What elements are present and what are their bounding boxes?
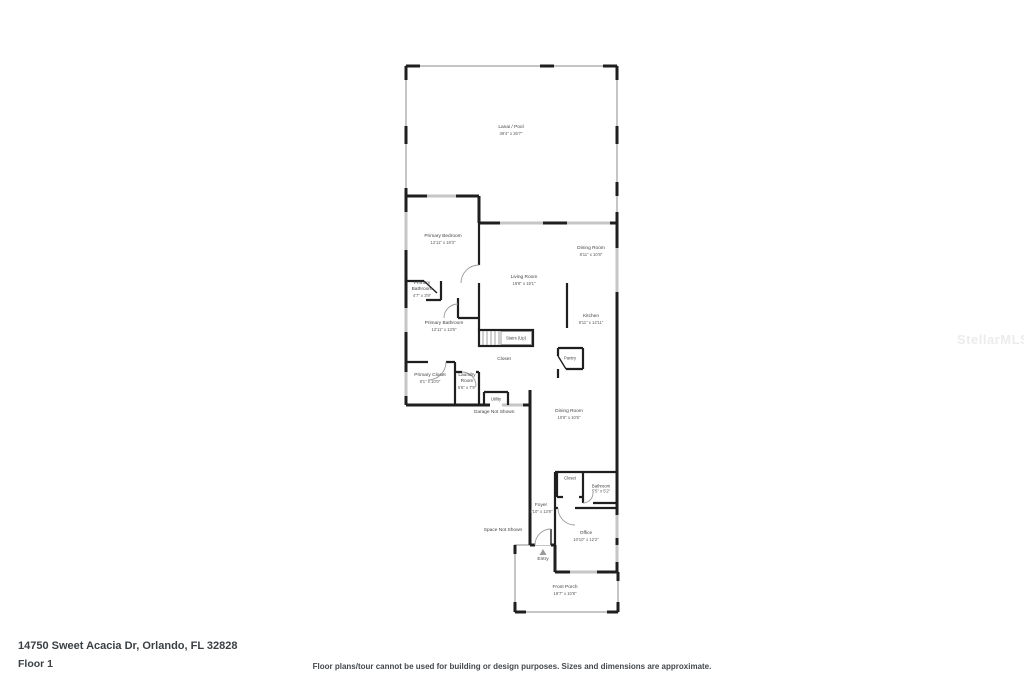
stairs-block: [479, 330, 533, 346]
disclaimer-text: Floor plans/tour cannot be used for buil…: [0, 662, 1024, 671]
property-address: 14750 Sweet Acacia Dr, Orlando, FL 32828: [18, 640, 238, 652]
floor-plan-drawing: [0, 0, 1024, 682]
stellar-mls-watermark: StellarMLS: [957, 332, 1024, 347]
entry-arrow-icon: [540, 549, 547, 555]
floor-plan-page: Lanai / Pool 39'4" x 26'7" Primary Bedro…: [0, 0, 1024, 682]
house-footprint: [406, 196, 617, 572]
